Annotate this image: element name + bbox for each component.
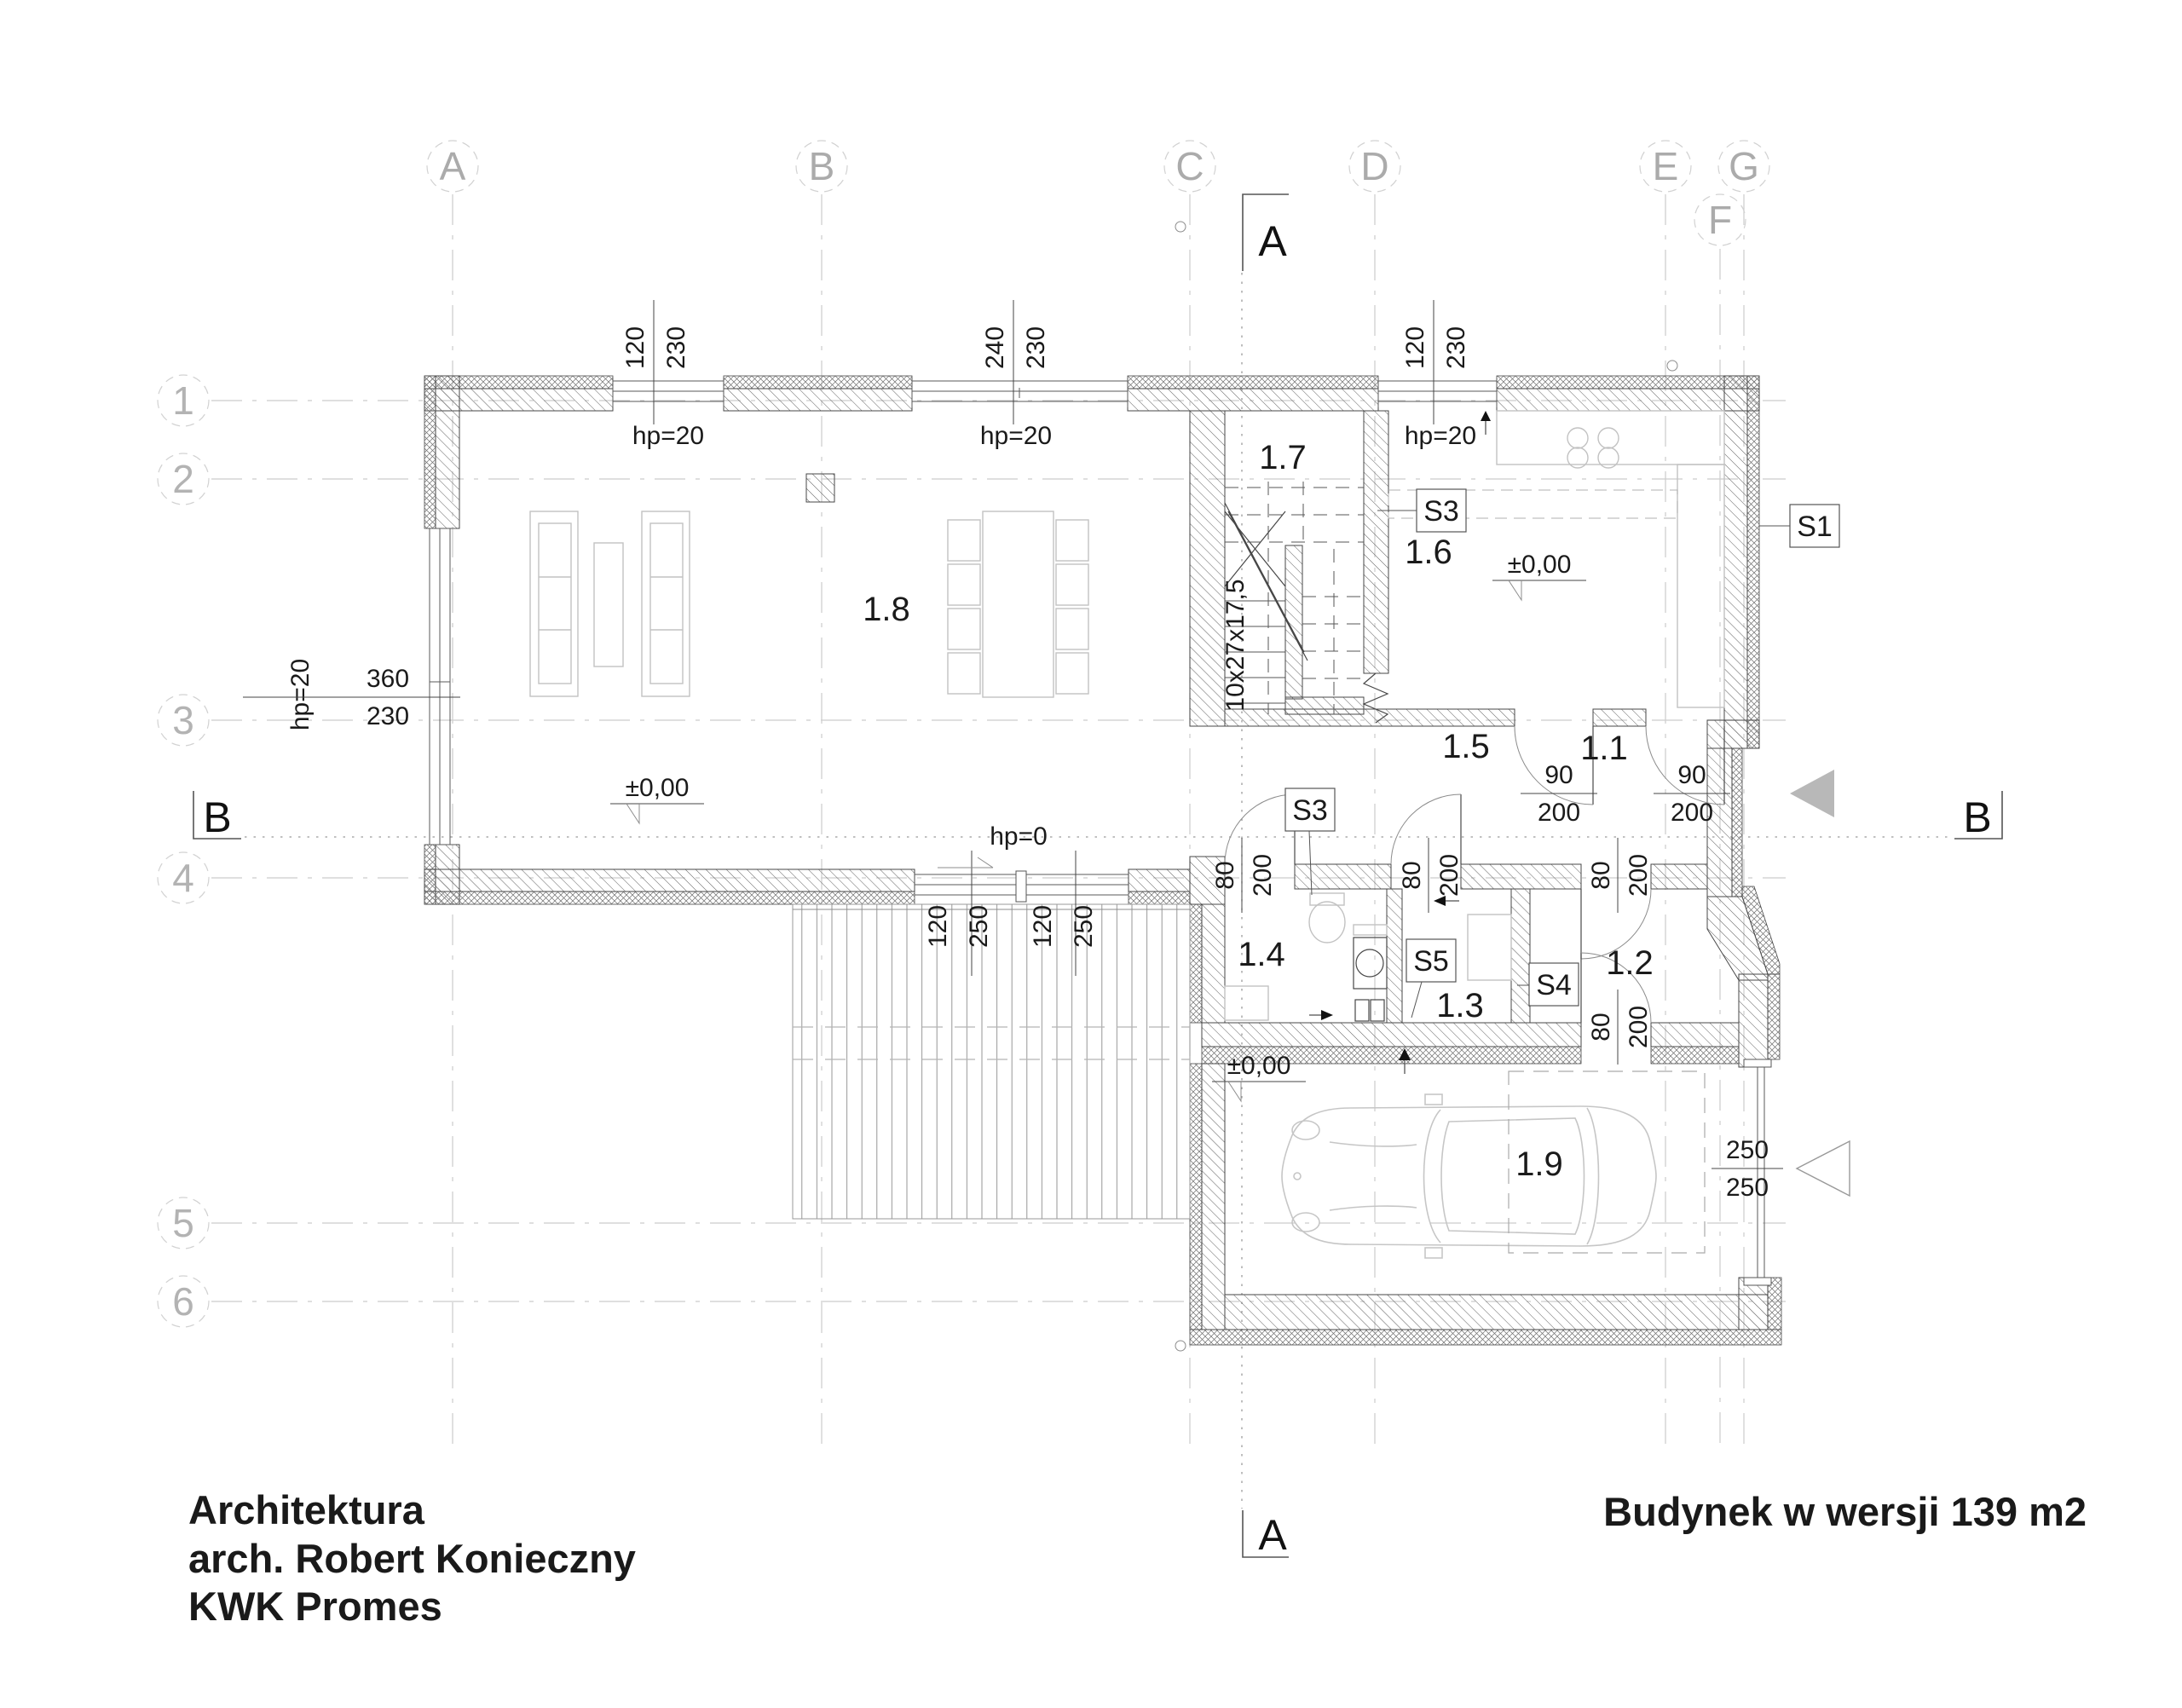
wall-hall-bath	[1461, 864, 1581, 889]
wall-hall-bath	[1651, 864, 1707, 889]
svg-text:250: 250	[1726, 1174, 1769, 1202]
door-slide-arrow	[938, 857, 993, 868]
parapet-label-terrace: hp=0	[990, 822, 1048, 851]
room-label-1-4: 1.4	[1238, 936, 1285, 973]
wall-south-living-insulation	[1129, 892, 1190, 904]
dim-garage-250-250: 250 250	[1712, 1136, 1783, 1202]
project-title: Budynek w wersji 139 m2	[1603, 1489, 2087, 1534]
wall-east-step	[1707, 720, 1759, 748]
svg-text:120: 120	[621, 326, 649, 369]
grid-label-c: C	[1175, 144, 1204, 188]
wall-south-living	[1129, 869, 1190, 892]
grid-label-2: 2	[172, 457, 194, 501]
credit-office: KWK Promes	[188, 1584, 442, 1629]
svg-text:S4: S4	[1536, 969, 1572, 1001]
room-label-1-8: 1.8	[863, 591, 910, 628]
wall-west-strip	[1202, 904, 1225, 1023]
grid-label-4: 4	[172, 856, 194, 900]
grid-label-f: F	[1708, 198, 1732, 242]
wall-strip-garage-insulation	[1651, 1047, 1739, 1064]
section-marker-a-bottom: A	[1258, 1511, 1287, 1559]
level-mark-kitchen: ±0,00	[1492, 551, 1586, 600]
svg-text:250: 250	[1070, 905, 1098, 948]
cooktop	[1567, 428, 1619, 468]
svg-text:200: 200	[1249, 854, 1277, 897]
entry-arrow	[1481, 411, 1491, 435]
wall-east-kitchen	[1724, 376, 1747, 748]
wall-garage-east	[1739, 974, 1768, 1067]
grid-label-5: 5	[172, 1201, 194, 1245]
svg-text:S5: S5	[1413, 945, 1449, 978]
section-marker-b-right: B	[1963, 793, 1991, 841]
room-label-1-9: 1.9	[1515, 1145, 1563, 1183]
svg-text:230: 230	[662, 326, 690, 369]
dim-window-120-230: 120 230	[621, 326, 690, 369]
wall-garage-south	[1225, 1295, 1768, 1330]
wall-west-garage	[1202, 1064, 1225, 1330]
axis-end-circle	[1175, 1341, 1186, 1351]
svg-text:10x27x17,5: 10x27x17,5	[1221, 579, 1250, 711]
coffee-table	[594, 543, 623, 666]
window-360-west	[426, 528, 456, 845]
dim-door-80-200: 80 200	[1587, 838, 1653, 913]
svg-text:250: 250	[965, 905, 993, 948]
grid-label-1: 1	[172, 378, 194, 423]
credit-studio: Architektura	[188, 1487, 425, 1532]
parapet-label: hp=20	[980, 422, 1052, 450]
window-120-north-kitchen	[1378, 378, 1497, 407]
grid-label-3: 3	[172, 698, 194, 742]
svg-text:240: 240	[981, 326, 1009, 369]
room-label-1-2: 1.2	[1606, 944, 1654, 982]
axis-grid: A B C D E F G 1 2 3 4 5 6	[158, 141, 1786, 1453]
wall-south-living	[424, 869, 915, 892]
title-block: Architektura arch. Robert Konieczny KWK …	[188, 1487, 2087, 1629]
wall-top-insulation	[1128, 376, 1378, 389]
wall-hall-bath	[1295, 864, 1391, 889]
living-furniture	[530, 474, 1088, 697]
garage-door	[1744, 1059, 1771, 1285]
grid-label-6: 6	[172, 1279, 194, 1324]
svg-text:200: 200	[1538, 799, 1580, 827]
window-120-north-living	[613, 378, 724, 407]
cabinet-room13	[1468, 915, 1511, 980]
svg-text:360: 360	[367, 665, 409, 693]
parapet-label: hp=20	[632, 422, 704, 450]
svg-text:230: 230	[1022, 326, 1050, 369]
svg-text:230: 230	[1442, 326, 1470, 369]
wall-west-insulation	[424, 376, 436, 528]
door-80-room-13	[1391, 794, 1461, 864]
wall-garage-east-insulation	[1768, 974, 1780, 1059]
svg-text:230: 230	[367, 702, 409, 730]
wall-living-stair	[1190, 411, 1225, 726]
kitchen-counter	[1497, 411, 1724, 465]
stair-wall	[1285, 697, 1364, 714]
section-marker-a-top: A	[1258, 217, 1287, 265]
svg-text:200: 200	[1625, 854, 1653, 897]
wall-east-kitchen-insulation	[1747, 376, 1759, 748]
wall-13-12	[1511, 889, 1530, 1023]
parapet-label: hp=20	[1405, 422, 1476, 450]
svg-text:120: 120	[1029, 905, 1057, 948]
sofa	[642, 511, 690, 696]
grid-label-e: E	[1653, 144, 1679, 188]
wall-garage-south-insulation	[1190, 1330, 1781, 1345]
window-240-north-living	[912, 378, 1128, 407]
kitchen-counter-side	[1677, 465, 1724, 707]
section-marker-b-left: B	[203, 793, 231, 841]
svg-text:200: 200	[1671, 799, 1713, 827]
wall-bath-shaft	[1387, 889, 1402, 1023]
grid-label-g: G	[1729, 144, 1759, 188]
marker-s3-stair: S3	[1377, 489, 1466, 532]
dim-door-90-200: 90 200	[1521, 761, 1597, 827]
svg-text:200: 200	[1435, 854, 1463, 897]
dim-window-120-230-kitchen: 120 230	[1401, 326, 1470, 369]
svg-text:S1: S1	[1797, 511, 1833, 543]
wall-south-living-insulation	[424, 892, 915, 904]
credit-architect: arch. Robert Konieczny	[188, 1536, 636, 1581]
wall-stair-kitchen	[1364, 411, 1388, 673]
staircase: 10x27x17,5	[1221, 482, 1364, 716]
wall-top-insulation	[724, 376, 912, 389]
svg-text:90: 90	[1544, 761, 1573, 789]
axis-end-circle	[1667, 361, 1677, 371]
garage-entry-arrow	[1797, 1141, 1850, 1196]
section-b-direction-arrow	[1790, 770, 1834, 817]
grid-label-d: D	[1360, 144, 1388, 188]
svg-text:S3: S3	[1423, 495, 1459, 528]
dim-window-240-230: 240 230	[981, 326, 1050, 369]
dim-door-80-200: 80 200	[1587, 990, 1653, 1065]
svg-text:80: 80	[1398, 861, 1426, 889]
wall-top	[724, 389, 912, 411]
wall-kitchen-hall	[1593, 709, 1646, 726]
svg-text:S3: S3	[1292, 794, 1328, 827]
door-80-bath-14	[1225, 794, 1295, 864]
terrace	[793, 904, 1190, 1219]
room-label-1-5: 1.5	[1442, 728, 1490, 765]
marker-s1: S1	[1759, 505, 1839, 547]
room-label-1-6: 1.6	[1405, 534, 1452, 571]
grid-label-b: B	[809, 144, 835, 188]
parapet-label-west: hp=20	[286, 659, 315, 730]
svg-text:250: 250	[1726, 1136, 1769, 1164]
svg-text:200: 200	[1625, 1006, 1653, 1048]
room-label-1-7: 1.7	[1259, 439, 1307, 476]
car-drawing	[1282, 1094, 1656, 1258]
svg-text:80: 80	[1587, 861, 1615, 889]
room-label-1-3: 1.3	[1436, 987, 1484, 1024]
axis-end-circle	[1175, 222, 1186, 232]
svg-text:120: 120	[1401, 326, 1429, 369]
wall-west-garage-insulation	[1190, 1064, 1202, 1330]
floor-plan-drawing: A B C D E F G 1 2 3 4 5 6 A A B B	[0, 0, 2182, 1708]
svg-text:±0,00: ±0,00	[1508, 551, 1572, 579]
wall-strip-garage	[1202, 1023, 1581, 1047]
grid-label-a: A	[440, 144, 466, 188]
terrace-doors-120	[915, 871, 1129, 902]
wall-top	[1128, 389, 1378, 411]
dining-table-with-chairs	[948, 511, 1088, 697]
wall-west	[436, 376, 459, 528]
wall-top	[1497, 389, 1759, 411]
svg-text:80: 80	[1211, 861, 1239, 889]
terrace-decking	[793, 904, 1190, 1219]
svg-text:120: 120	[924, 905, 952, 948]
svg-text:80: 80	[1587, 1013, 1615, 1041]
wall-west-strip-insulation	[1190, 904, 1202, 1023]
toilet	[1309, 893, 1345, 943]
dim-door-80-200: 80 200	[1398, 838, 1463, 913]
wall-top-insulation	[1497, 376, 1759, 389]
svg-text:±0,00: ±0,00	[1227, 1052, 1291, 1080]
level-mark-living: ±0,00	[610, 774, 704, 823]
svg-text:±0,00: ±0,00	[626, 774, 690, 802]
sofa	[530, 511, 578, 696]
stair-spec-label: 10x27x17,5	[1221, 579, 1250, 711]
svg-text:hp=20: hp=20	[286, 659, 315, 730]
room-label-1-1: 1.1	[1580, 730, 1628, 767]
washer-column	[1354, 925, 1387, 1021]
svg-text:90: 90	[1677, 761, 1706, 789]
cabinet-room14	[1225, 986, 1268, 1020]
wall-strip-garage	[1651, 1023, 1739, 1047]
wall-east-hall-insulation	[1732, 748, 1742, 897]
column	[806, 474, 834, 502]
